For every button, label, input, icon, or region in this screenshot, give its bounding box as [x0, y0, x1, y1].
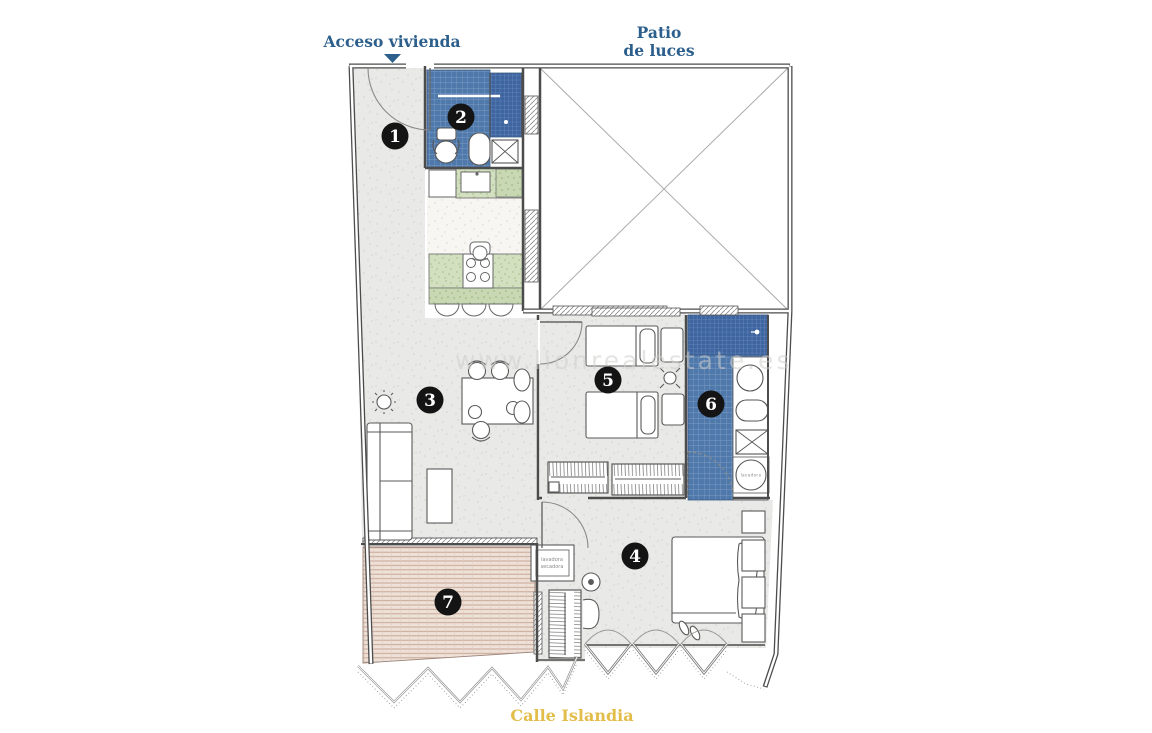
badge-number: 6 — [705, 395, 717, 415]
laundry-cabinet-label: lavadora — [541, 557, 563, 563]
badge-number: 4 — [629, 547, 641, 567]
closet-door — [742, 614, 765, 642]
badge-number: 2 — [455, 108, 467, 128]
closet-door — [742, 540, 765, 571]
fridge — [429, 170, 456, 197]
window — [700, 306, 738, 315]
stool — [462, 304, 486, 316]
toilet-icon — [469, 133, 490, 165]
floorplan-page: lavadora — [0, 0, 1152, 733]
window — [525, 210, 538, 282]
fan-icon — [582, 573, 600, 591]
label-acceso-vivienda: Acceso vivienda — [322, 32, 460, 51]
kitchen-counter-strip — [429, 288, 523, 304]
sofa — [367, 423, 412, 540]
stool — [489, 304, 513, 316]
room-badge-2: 2 — [448, 104, 475, 131]
pillow — [641, 396, 655, 434]
bidet-icon — [433, 128, 459, 163]
kitchen — [427, 168, 523, 316]
watermark-text: www.lionrealestate.es — [455, 346, 792, 375]
room-badge-3: 3 — [417, 387, 444, 414]
shaft-box — [736, 430, 768, 454]
washer-drum-label: lavadora — [741, 473, 762, 478]
room-badge-5: 5 — [595, 367, 622, 394]
window — [525, 96, 538, 134]
badge-number: 7 — [442, 593, 454, 613]
bed — [586, 392, 658, 438]
dining-chair — [514, 401, 530, 423]
awning-zigzag — [358, 657, 577, 708]
faucet-icon — [475, 172, 478, 175]
dressing-stool — [583, 599, 599, 628]
room-badge-7: 7 — [435, 589, 462, 616]
washing-machine-icon: lavadora — [733, 457, 769, 493]
shower-drain-icon — [504, 120, 508, 124]
wardrobe — [548, 462, 608, 493]
room-badge-1: 1 — [382, 123, 409, 150]
label-calle-islandia: Calle Islandia — [510, 706, 633, 725]
bath2-shower-area — [490, 73, 522, 137]
kitchen-sink — [461, 172, 490, 192]
window — [592, 308, 680, 316]
badge-number: 1 — [389, 127, 401, 147]
table-decor — [469, 406, 482, 419]
patio-lightwell — [540, 68, 788, 310]
toilet-icon — [736, 400, 768, 421]
floorplan-drawing: lavadora — [0, 0, 1152, 733]
kitchen-counter-corner — [496, 169, 522, 197]
room-badge-4: 4 — [622, 543, 649, 570]
room-badge-6: 6 — [698, 391, 725, 418]
laundry-cabinet-label: secadora — [541, 564, 564, 570]
label-patio-line1: Patio — [637, 23, 682, 42]
wardrobe — [612, 464, 684, 495]
arrow-down-icon — [384, 54, 401, 63]
closet-door — [742, 577, 765, 608]
badge-number: 3 — [424, 391, 436, 411]
bathroom-2 — [427, 70, 522, 168]
clothes-rack — [549, 590, 581, 658]
coffee-table — [427, 469, 452, 523]
nightstand — [662, 394, 684, 425]
label-patio-line2: de luces — [623, 41, 695, 60]
shaft-box — [492, 140, 518, 163]
badge-number: 5 — [602, 371, 614, 391]
closet-door — [742, 511, 765, 533]
stool — [435, 304, 459, 316]
